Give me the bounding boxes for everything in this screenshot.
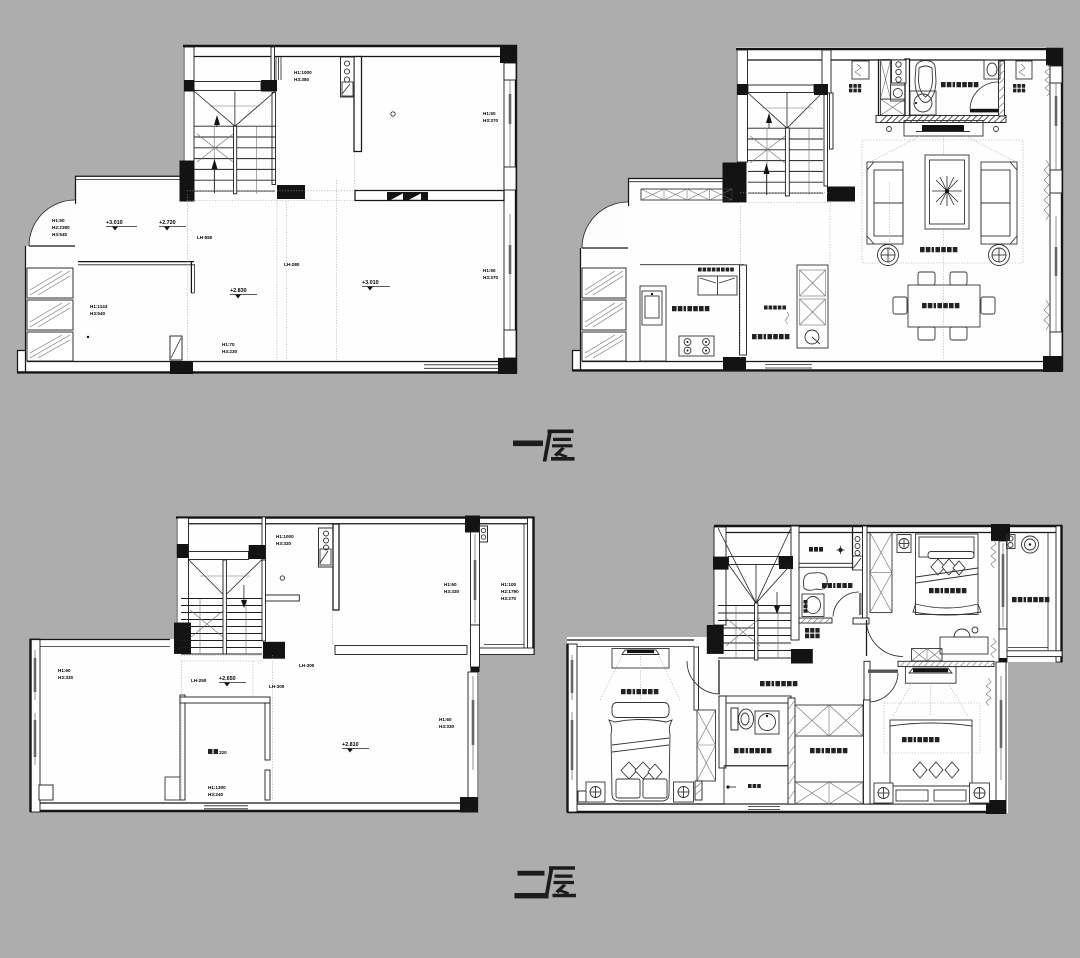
svg-text:H1:1143: H1:1143 — [90, 304, 108, 309]
svg-text:H1:60: H1:60 — [439, 717, 452, 722]
svg-text:+2.830: +2.830 — [230, 288, 247, 294]
svg-text:H1:100: H1:100 — [501, 582, 517, 587]
svg-text:H3:330: H3:330 — [439, 724, 455, 729]
svg-text:220: 220 — [219, 750, 227, 755]
svg-text:H3:540: H3:540 — [90, 311, 106, 316]
svg-text:H1:50: H1:50 — [483, 111, 496, 116]
svg-text:H3:380: H3:380 — [294, 77, 310, 82]
svg-text:H1:1000: H1:1000 — [294, 70, 312, 75]
svg-text:H3:240: H3:240 — [208, 792, 224, 797]
svg-text:H1:1300: H1:1300 — [208, 785, 226, 790]
svg-text:H3:320: H3:320 — [276, 541, 292, 546]
svg-text:H3:270: H3:270 — [501, 596, 517, 601]
svg-text:H3:330: H3:330 — [444, 589, 460, 594]
svg-text:H3:540: H3:540 — [52, 232, 68, 237]
svg-text:H2:1790: H2:1790 — [501, 589, 519, 594]
svg-text:H1:50: H1:50 — [52, 218, 65, 223]
svg-text:H3:230: H3:230 — [222, 349, 238, 354]
svg-text:H2:2390: H2:2390 — [52, 225, 70, 230]
svg-text:H1:60: H1:60 — [58, 668, 71, 673]
svg-text:H1:70: H1:70 — [222, 342, 235, 347]
svg-text:+3.010: +3.010 — [106, 220, 123, 226]
svg-text:H1:50: H1:50 — [483, 268, 496, 273]
svg-text:H3:370: H3:370 — [483, 275, 499, 280]
svg-text:LH-300: LH-300 — [299, 663, 315, 668]
svg-text:+2.650: +2.650 — [219, 676, 236, 682]
svg-text:H3:370: H3:370 — [483, 118, 499, 123]
svg-text:+3.010: +3.010 — [362, 280, 379, 286]
svg-text:LH-250: LH-250 — [191, 678, 207, 683]
svg-text:+2.720: +2.720 — [159, 220, 176, 226]
svg-text:H1:60: H1:60 — [444, 582, 457, 587]
svg-text:H3:330: H3:330 — [58, 675, 74, 680]
svg-text:H1:1000: H1:1000 — [276, 534, 294, 539]
svg-text:LH-550: LH-550 — [197, 235, 213, 240]
svg-text:+2.810: +2.810 — [342, 742, 359, 748]
svg-text:LH-280: LH-280 — [284, 262, 300, 267]
svg-text:LH-300: LH-300 — [269, 684, 285, 689]
